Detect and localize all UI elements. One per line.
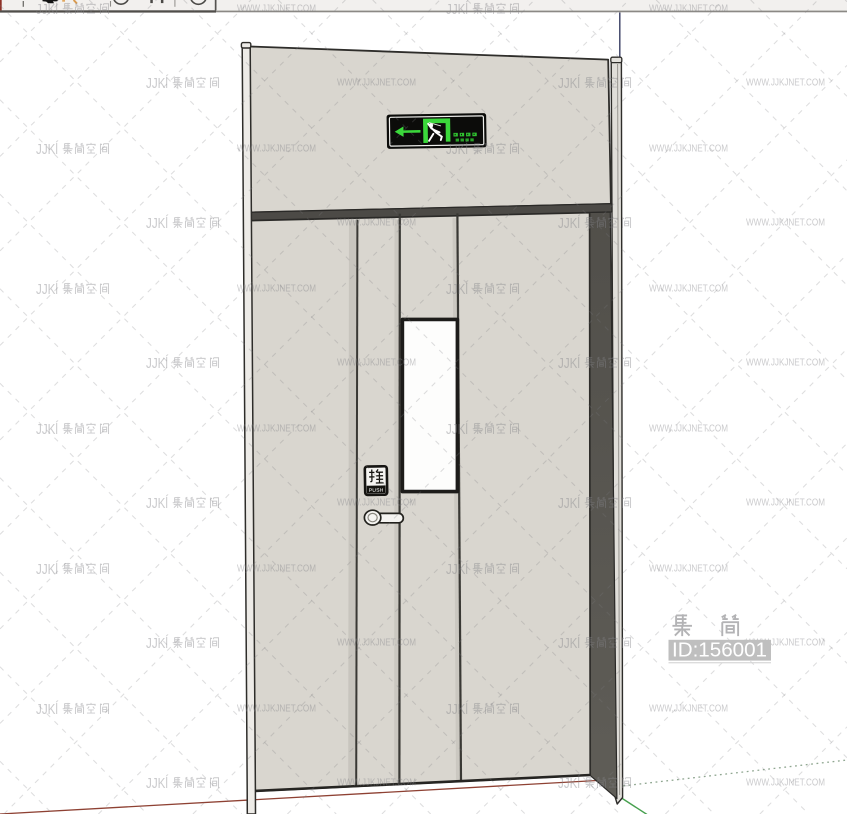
svg-text:WWW.JJKJNET.COM: WWW.JJKJNET.COM xyxy=(746,78,825,89)
svg-text:WWW.JJKJNET.COM: WWW.JJKJNET.COM xyxy=(337,498,416,509)
svg-text:WWW.JJKJNET.COM: WWW.JJKJNET.COM xyxy=(649,144,728,155)
svg-text:WWW.JJKJNET.COM: WWW.JJKJNET.COM xyxy=(746,778,825,789)
svg-text:WWW.JJKJNET.COM: WWW.JJKJNET.COM xyxy=(337,218,416,229)
svg-text:WWW.JJKJNET.COM: WWW.JJKJNET.COM xyxy=(649,424,728,435)
svg-text:WWW.JJKJNET.COM: WWW.JJKJNET.COM xyxy=(237,144,316,155)
svg-text:WWW.JJKJNET.COM: WWW.JJKJNET.COM xyxy=(237,4,316,15)
svg-text:WWW.JJKJNET.COM: WWW.JJKJNET.COM xyxy=(337,358,416,369)
svg-text:WWW.JJKJNET.COM: WWW.JJKJNET.COM xyxy=(649,284,728,295)
svg-text:WWW.JJKJNET.COM: WWW.JJKJNET.COM xyxy=(337,778,416,789)
svg-text:WWW.JJKJNET.COM: WWW.JJKJNET.COM xyxy=(237,424,316,435)
svg-text:WWW.JJKJNET.COM: WWW.JJKJNET.COM xyxy=(337,638,416,649)
svg-text:WWW.JJKJNET.COM: WWW.JJKJNET.COM xyxy=(746,498,825,509)
svg-text:WWW.JJKJNET.COM: WWW.JJKJNET.COM xyxy=(237,284,316,295)
svg-text:WWW.JJKJNET.COM: WWW.JJKJNET.COM xyxy=(649,4,728,15)
svg-text:WWW.JJKJNET.COM: WWW.JJKJNET.COM xyxy=(649,564,728,575)
svg-text:WWW.JJKJNET.COM: WWW.JJKJNET.COM xyxy=(337,78,416,89)
svg-text:WWW.JJKJNET.COM: WWW.JJKJNET.COM xyxy=(649,704,728,715)
svg-text:WWW.JJKJNET.COM: WWW.JJKJNET.COM xyxy=(746,218,825,229)
svg-text:ID:156001: ID:156001 xyxy=(672,640,767,662)
svg-text:PUSH: PUSH xyxy=(369,488,384,494)
svg-text:WWW.JJKJNET.COM: WWW.JJKJNET.COM xyxy=(237,704,316,715)
svg-text:WWW.JJKJNET.COM: WWW.JJKJNET.COM xyxy=(746,358,825,369)
svg-text:WWW.JJKJNET.COM: WWW.JJKJNET.COM xyxy=(237,564,316,575)
